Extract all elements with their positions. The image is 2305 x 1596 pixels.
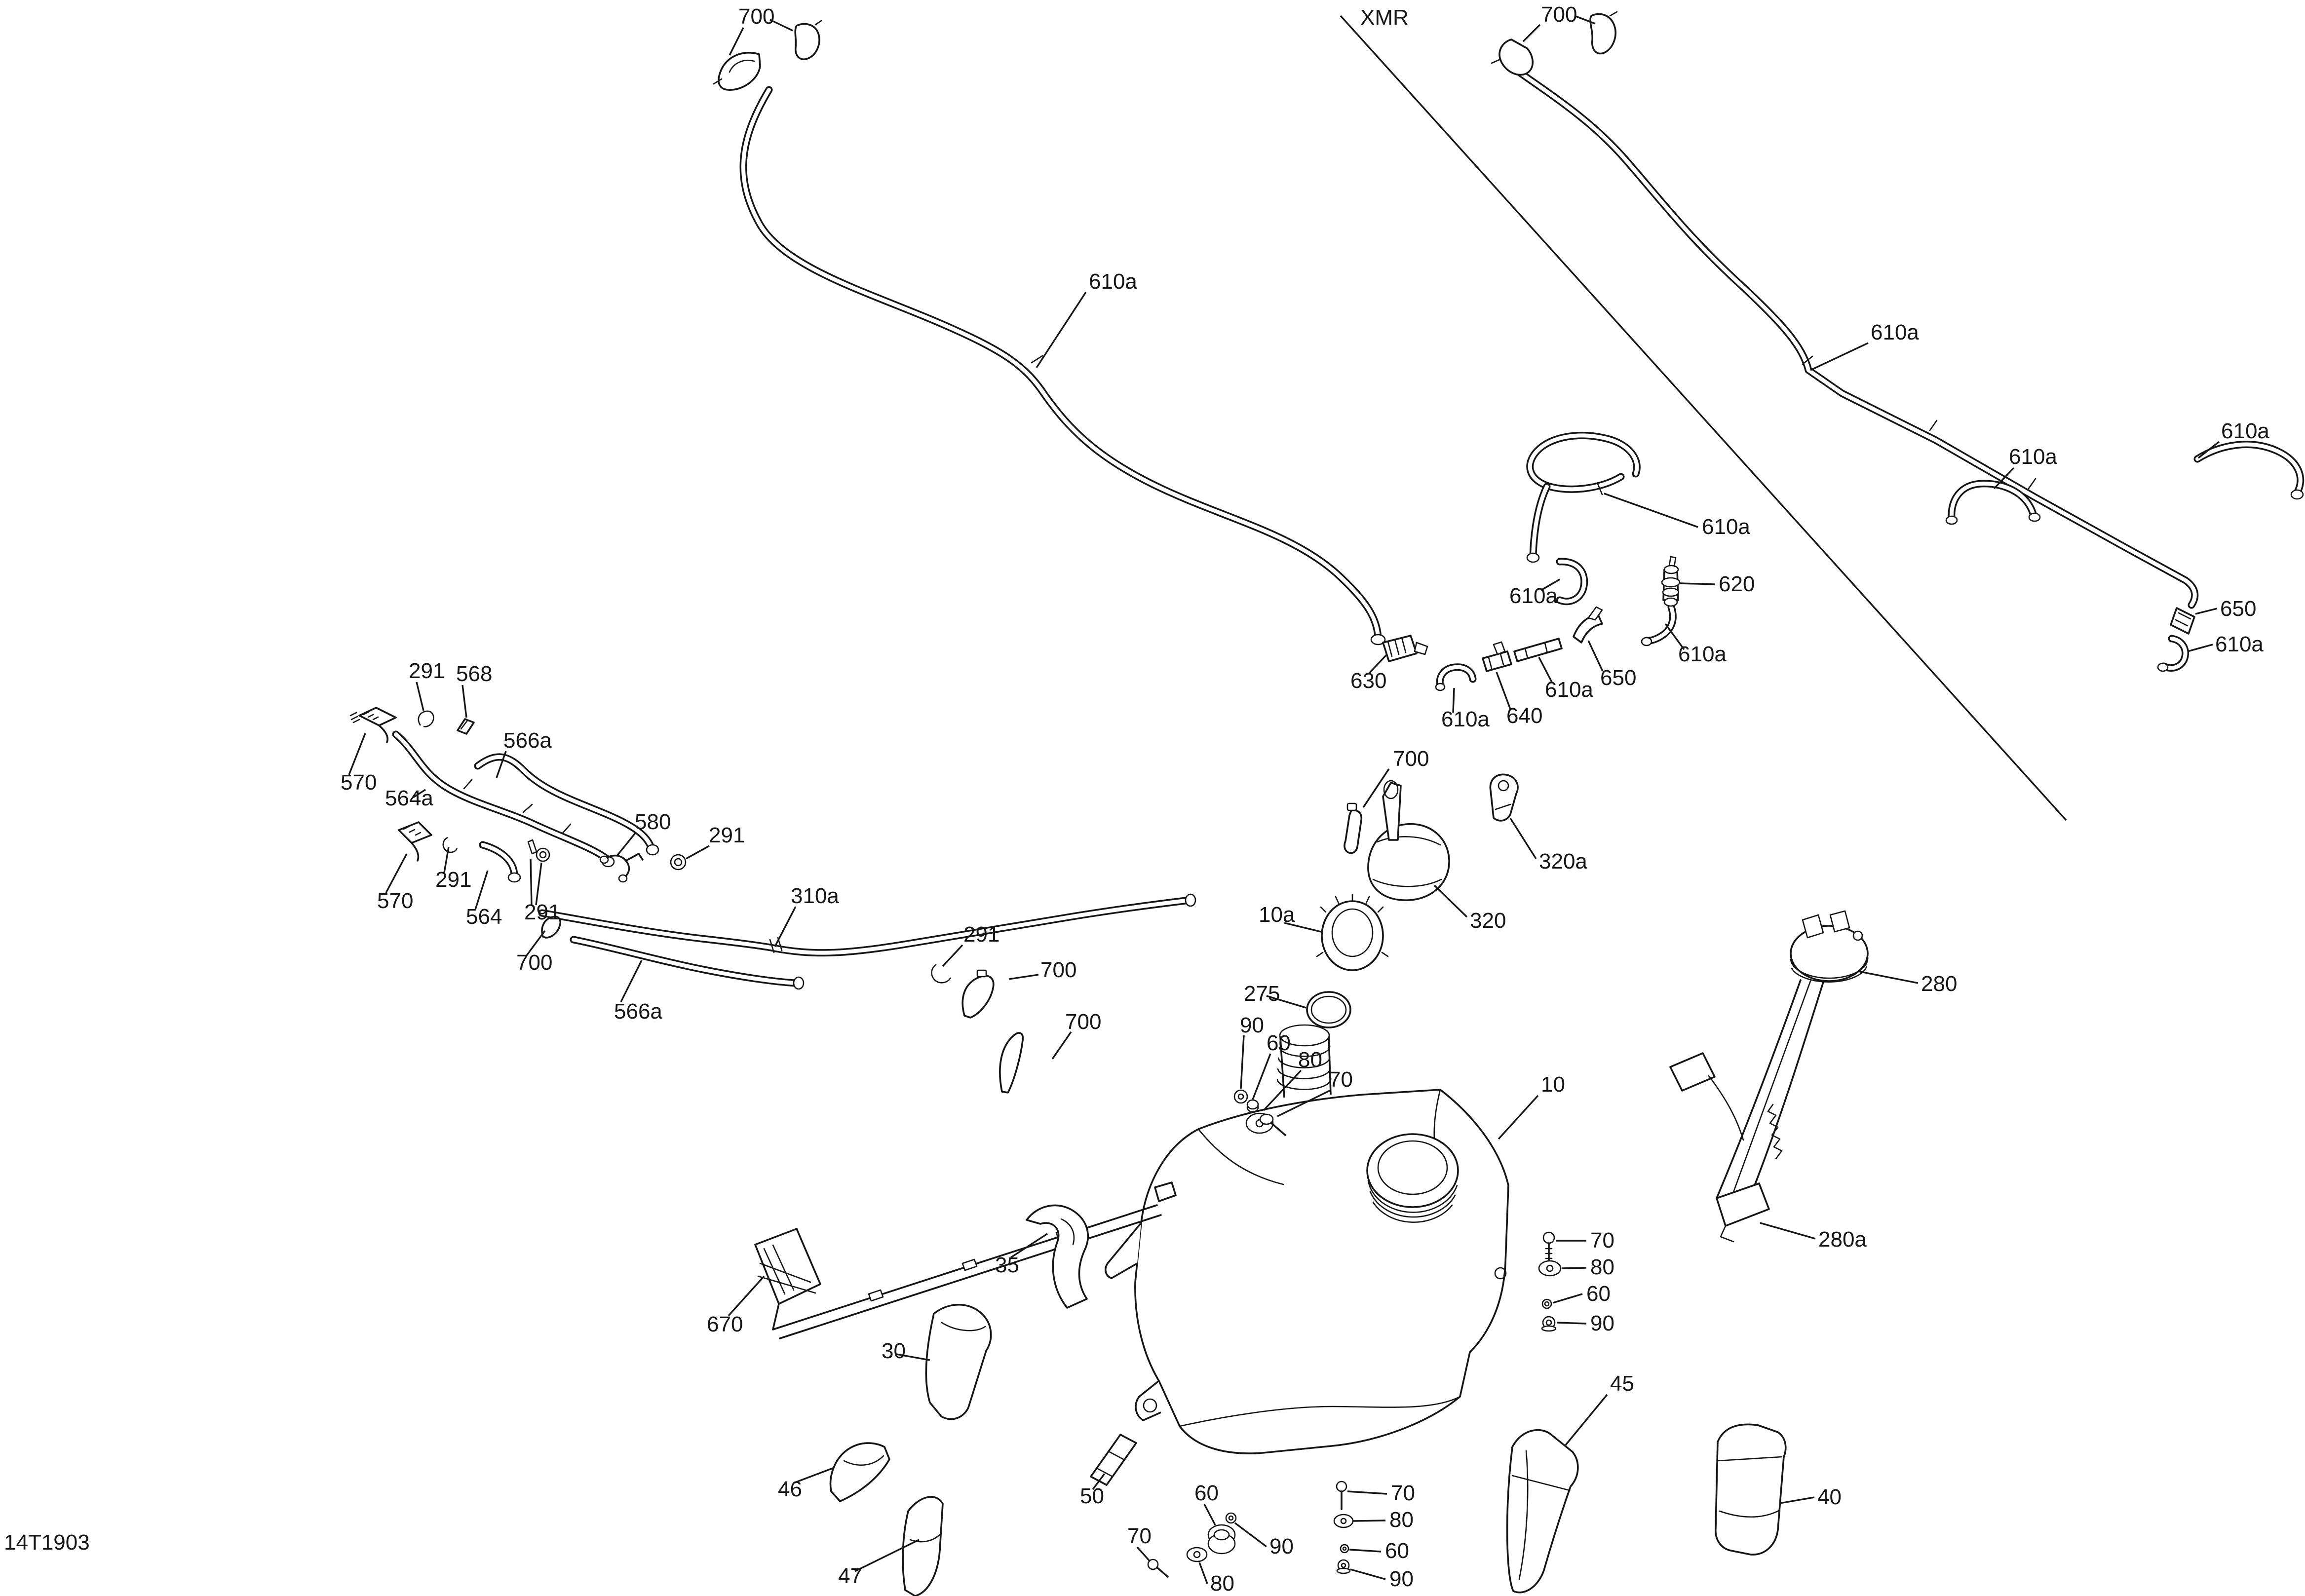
diagram-linework — [815, 21, 821, 25]
washer-80-bottom-right — [1334, 1515, 1353, 1527]
nut-60-right — [1542, 1299, 1551, 1308]
part-label-610a-7: 610a — [2215, 632, 2264, 656]
diagram-linework — [1027, 1205, 1088, 1308]
diagram-linework — [399, 822, 431, 843]
leader-line — [1566, 1395, 1607, 1445]
leader-line — [1347, 1491, 1387, 1494]
diagram-linework — [2158, 663, 2168, 671]
diagram-linework — [1341, 1519, 1346, 1523]
panel-46 — [830, 1443, 889, 1501]
panel-45 — [1507, 1430, 1578, 1593]
part-label-568-50: 568 — [456, 662, 492, 686]
part-label-650-6: 650 — [2220, 597, 2256, 621]
diagram-linework — [1311, 996, 1346, 1023]
part-label-90-32: 90 — [1590, 1311, 1614, 1335]
part-label-280-27: 280 — [1921, 972, 1957, 996]
diagram-linework — [1415, 643, 1427, 654]
leader-line — [1680, 583, 1715, 584]
diagram-linework — [1000, 1033, 1023, 1093]
leader-line — [1235, 1523, 1267, 1547]
diagram-linework — [464, 356, 2036, 952]
leader-line — [1510, 818, 1536, 859]
part-label-280a-28: 280a — [1818, 1227, 1867, 1252]
diagram-linework — [458, 719, 474, 734]
diagram-linework — [1378, 1141, 1447, 1194]
part-label-650-16: 650 — [1600, 666, 1636, 690]
grommet-60-bottom — [1208, 1525, 1235, 1554]
part-label-310a-61: 310a — [791, 884, 839, 908]
part-label-570-57: 570 — [377, 889, 413, 913]
diagram-linework — [962, 976, 994, 1018]
part-label-320a-18: 320a — [1539, 849, 1587, 874]
leader-line — [2195, 608, 2217, 614]
part-label-60-31: 60 — [1586, 1282, 1611, 1306]
diagram-linework — [932, 964, 951, 983]
part-label-700-1: 700 — [1541, 2, 1577, 27]
part-label-610a-10: 610a — [1509, 584, 1558, 608]
diagram-linework — [1499, 39, 1533, 75]
washer-80-bottom-left — [1187, 1548, 1207, 1561]
bolt-70-right — [1543, 1232, 1554, 1262]
parts-diagram-page: 14T1903 — [0, 0, 2305, 1596]
diagram-linework — [1768, 1104, 1782, 1159]
diagram-linework — [1136, 1381, 1161, 1420]
diagram-linework — [1670, 1053, 1715, 1091]
diagram-linework — [1186, 894, 1195, 906]
part-label-291-59: 291 — [524, 900, 560, 924]
vent-hose-left-610a — [743, 90, 1378, 638]
elbow-610a-right — [2164, 639, 2186, 668]
part-label-640-14: 640 — [1506, 704, 1542, 728]
diagram-linework — [719, 53, 760, 90]
fuel-pump-280 — [1670, 911, 1868, 1242]
diagram-linework — [903, 1497, 943, 1596]
part-label-70-45: 70 — [1391, 1481, 1415, 1505]
leader-line — [1009, 975, 1038, 979]
diagram-linework — [2171, 608, 2194, 634]
leader-line — [531, 859, 532, 905]
diagram-linework — [1494, 642, 1505, 654]
diagram-linework — [794, 977, 804, 989]
diagram-linework — [1194, 1552, 1200, 1558]
diagram-linework — [1091, 1435, 1136, 1485]
leader-line — [1353, 1520, 1385, 1521]
retainer-clip-700-top-right-a — [1492, 39, 1533, 75]
part-label-564a-53: 564a — [385, 786, 433, 810]
part-label-46-38: 46 — [778, 1477, 802, 1501]
part-label-610a-3: 610a — [1871, 320, 1919, 344]
leader-line — [2188, 645, 2213, 651]
drawing-code-label: 14T1903 — [4, 1530, 90, 1555]
diagram-linework — [1545, 1302, 1549, 1306]
diagram-linework — [1337, 1482, 1346, 1491]
leader-line — [1241, 1035, 1244, 1089]
part-label-566a-62: 566a — [614, 999, 662, 1024]
leader-line — [1350, 1569, 1385, 1579]
leader-line — [729, 1276, 764, 1316]
retainer-clip-700-top-left-b — [795, 21, 821, 59]
diagram-linework — [1343, 1547, 1346, 1550]
cap-bracket-320a — [1490, 774, 1518, 821]
diagram-linework — [1642, 638, 1652, 646]
diagram-linework — [350, 713, 359, 722]
clamp-291-c — [443, 837, 457, 852]
diagram-linework — [1516, 70, 2195, 605]
elbow-610a-mid — [1560, 562, 1584, 602]
hose-cuffs — [508, 490, 2303, 989]
diagram-linework — [540, 852, 546, 858]
part-label-620-9: 620 — [1719, 572, 1755, 596]
exploded-parts-diagram: 14T1903 — [0, 0, 2305, 1596]
diagram-linework — [1547, 1265, 1553, 1271]
diagram-linework — [508, 873, 520, 882]
diagram-linework — [1574, 615, 1602, 643]
diagram-linework — [647, 845, 658, 855]
leader-line — [1553, 1294, 1582, 1303]
part-label-610a-2: 610a — [1089, 269, 1137, 294]
vent-hose-s-610a — [1530, 435, 1637, 556]
leader-line — [1199, 1562, 1207, 1584]
part-label-610a-11: 610a — [1678, 642, 1727, 666]
part-label-670-35: 670 — [707, 1312, 743, 1336]
diagram-linework — [2291, 490, 2303, 499]
diagram-linework — [1383, 636, 1417, 661]
part-label-30-37: 30 — [882, 1339, 906, 1363]
panel-47 — [903, 1497, 943, 1596]
vent-hose-end-right-610a — [2197, 445, 2301, 493]
leader-line — [386, 854, 407, 893]
leader-line — [1760, 1223, 1815, 1239]
diagram-linework — [1663, 588, 1679, 596]
leader-line — [1498, 1096, 1538, 1139]
diagram-linework — [1342, 1563, 1345, 1567]
diagram-linework — [1664, 566, 1678, 573]
variant-divider-line — [1341, 16, 2066, 820]
part-label-564-58: 564 — [466, 905, 502, 929]
diagram-linework — [926, 1305, 991, 1419]
diagram-linework — [1662, 578, 1680, 587]
y-fitting-580 — [600, 854, 643, 882]
diagram-linework — [1238, 1094, 1243, 1099]
fuel-cap-320 — [1368, 781, 1449, 900]
diagram-linework — [1507, 1430, 1578, 1593]
ring-291-b — [671, 855, 686, 870]
part-label-10-26: 10 — [1541, 1072, 1565, 1097]
part-label-275-21: 275 — [1244, 982, 1280, 1006]
leader-line — [1604, 494, 1698, 527]
flange-nut-90-bottom-right — [1337, 1560, 1350, 1573]
part-label-80-24: 80 — [1298, 1048, 1322, 1072]
diagram-linework — [600, 856, 608, 863]
leader-line — [1562, 1268, 1586, 1268]
diagram-linework — [1543, 1232, 1554, 1243]
part-label-90-22: 90 — [1240, 1013, 1264, 1037]
diagram-linework — [619, 875, 627, 882]
part-label-47-39: 47 — [838, 1564, 862, 1588]
part-label-700-64: 700 — [1040, 958, 1076, 982]
part-label-610a-8: 610a — [1702, 515, 1750, 539]
leader-line — [1523, 25, 1540, 41]
leader-line — [621, 960, 642, 1002]
part-label-60-41: 60 — [1194, 1481, 1219, 1505]
retainer-clip-700-top-left-a — [714, 53, 760, 90]
diagram-linework — [1347, 803, 1356, 810]
part-label-80-43: 80 — [1210, 1571, 1234, 1596]
leader-line — [1810, 343, 1868, 370]
part-label-700-65: 700 — [1065, 1010, 1101, 1034]
nut-90-bottom-left — [1226, 1513, 1236, 1523]
leader-line — [536, 863, 541, 905]
variant-label: XMR — [1360, 5, 1409, 30]
diagram-linework — [1560, 562, 1584, 602]
diagram-linework — [1610, 12, 1617, 16]
part-label-60-23: 60 — [1267, 1031, 1291, 1055]
diagram-linework — [1542, 1326, 1556, 1331]
diagram-linework — [1716, 1424, 1786, 1555]
leader-line — [1780, 1497, 1814, 1503]
nut-60-bottom-right — [1341, 1545, 1348, 1553]
part-label-50-40: 50 — [1080, 1484, 1104, 1508]
part-label-90-44: 90 — [1269, 1534, 1294, 1558]
diagram-linework — [1721, 1226, 1733, 1242]
leader-line — [1434, 885, 1467, 917]
leader-line — [1204, 1504, 1215, 1525]
diagram-linework — [1546, 1320, 1551, 1325]
leader-line — [1349, 1550, 1381, 1552]
leader-line — [775, 907, 796, 947]
leader-line — [475, 871, 488, 910]
diagram-linework — [1214, 1530, 1229, 1540]
part-label-70-25: 70 — [1329, 1067, 1353, 1092]
fuel-tank-10 — [1106, 1025, 1508, 1453]
part-label-80-30: 80 — [1590, 1255, 1614, 1279]
part-label-570-51: 570 — [341, 770, 377, 795]
leader-line — [349, 733, 365, 775]
cap-strap-700 — [1345, 803, 1361, 853]
diagram-linework — [443, 837, 457, 852]
retainer-clip-700-top-right-b — [1590, 12, 1617, 54]
seal-oring-275 — [1307, 992, 1350, 1027]
part-label-80-46: 80 — [1389, 1508, 1414, 1532]
diagram-linework — [412, 843, 419, 861]
spacer-60-mid — [1247, 1100, 1258, 1112]
diagram-linework — [1337, 1568, 1350, 1573]
fitting-630 — [1383, 636, 1427, 661]
diagram-linework — [2029, 513, 2040, 521]
part-label-45-33: 45 — [1610, 1371, 1634, 1396]
part-label-700-60: 700 — [516, 950, 552, 975]
diagram-linework — [1157, 1567, 1168, 1577]
part-label-610a-15: 610a — [1545, 678, 1593, 702]
fitting-650-mid — [1574, 607, 1602, 643]
part-label-566a-52: 566a — [503, 728, 552, 753]
part-label-291-49: 291 — [409, 659, 445, 683]
diagram-linework — [1530, 435, 1637, 489]
clip-568 — [458, 719, 474, 734]
lock-ring-10a — [1317, 894, 1388, 970]
diagram-linework — [755, 1229, 820, 1304]
pipe-610a-segment — [1514, 639, 1562, 661]
diagram-linework — [542, 900, 1190, 953]
vent-hose-right-610a — [1516, 70, 2195, 605]
connector-570-upper — [350, 708, 396, 742]
duct-35 — [1027, 1205, 1088, 1308]
diagram-linework — [419, 711, 433, 726]
leader-line — [417, 682, 423, 711]
part-label-700-17: 700 — [1393, 747, 1429, 771]
part-label-291-56: 291 — [435, 868, 471, 892]
check-valve-620 — [1662, 557, 1680, 606]
part-label-580-54: 580 — [635, 810, 671, 834]
diagram-linework — [1345, 810, 1361, 853]
clamp-700-mid — [962, 970, 994, 1018]
diagram-linework — [379, 725, 387, 742]
flange-nut-90-right — [1542, 1317, 1556, 1331]
hose-620-drop — [1647, 607, 1673, 641]
part-label-10a-20: 10a — [1259, 903, 1295, 927]
diagram-linework — [1247, 1100, 1258, 1109]
diagram-linework — [1717, 1183, 1769, 1226]
connector-570-lower — [399, 822, 431, 861]
leader-line — [1858, 971, 1918, 983]
strip-50 — [1091, 1435, 1136, 1485]
part-label-610a-4: 610a — [2009, 445, 2057, 469]
diagram-linework — [1946, 516, 1957, 524]
leader-line — [1052, 1032, 1071, 1059]
diagram-linework — [869, 1229, 1071, 1301]
part-label-40-34: 40 — [1817, 1485, 1842, 1509]
bolt-70-bottom-right — [1337, 1482, 1346, 1509]
nut-90-mid — [1234, 1090, 1247, 1103]
part-label-70-29: 70 — [1590, 1228, 1614, 1253]
part-label-610a-13: 610a — [1441, 707, 1490, 731]
diagram-linework — [743, 90, 1378, 638]
clamp-291-right — [932, 964, 951, 983]
leader-line — [617, 833, 636, 856]
clamp-700-lower — [1000, 1033, 1023, 1093]
diagram-linework — [1332, 909, 1373, 956]
diagram-linework — [977, 970, 986, 977]
diagram-linework — [675, 859, 682, 866]
part-label-70-42: 70 — [1127, 1524, 1152, 1548]
clamp-291-a — [419, 711, 433, 726]
part-label-630-12: 630 — [1350, 669, 1386, 693]
diagram-linework — [626, 854, 643, 861]
tee-fitting-640 — [1483, 642, 1511, 671]
diagram-linework — [1717, 980, 1801, 1198]
hose-segment-ticks — [464, 356, 2036, 952]
leader-line — [943, 945, 962, 966]
leader-line — [1557, 1323, 1586, 1324]
panel-40 — [1716, 1424, 1786, 1555]
leader-line — [462, 685, 466, 718]
part-number-labels: 700700610a610a610a610a650610a610a620610a… — [4, 2, 2269, 1596]
diagram-linework — [1853, 931, 1862, 940]
diagram-linework — [528, 840, 537, 854]
leader-line — [1037, 292, 1086, 368]
diagram-linework — [743, 90, 1378, 638]
leader-line — [1137, 1547, 1150, 1561]
part-label-60-47: 60 — [1385, 1539, 1409, 1563]
part-label-291-55: 291 — [709, 823, 745, 847]
leader-line — [730, 28, 743, 55]
part-label-320-19: 320 — [1470, 909, 1506, 933]
diagram-linework — [1135, 1090, 1508, 1453]
diagram-linework — [1492, 59, 1500, 63]
diagram-linework — [1514, 639, 1562, 661]
bolt-70-bottom-left — [1148, 1559, 1168, 1577]
fuel-line-310a — [542, 900, 1190, 953]
diagram-linework — [1229, 1516, 1233, 1520]
washer-80-right — [1539, 1261, 1561, 1276]
diagram-linework — [1527, 553, 1539, 562]
diagram-linework — [1436, 684, 1445, 690]
diagram-linework — [1664, 598, 1677, 606]
part-label-35-36: 35 — [995, 1253, 1019, 1277]
pin-and-ring-291-d — [528, 840, 549, 861]
diagram-linework — [359, 708, 396, 725]
diagram-linework — [1590, 14, 1615, 54]
diagram-linework — [830, 1443, 889, 1501]
leader-line — [1253, 1054, 1270, 1100]
diagram-linework — [1730, 981, 1810, 1200]
diagram-linework — [1709, 1076, 1743, 1140]
elbow-fitting-610a-low — [1436, 667, 1473, 690]
part-label-700-0: 700 — [738, 4, 774, 29]
part-label-610a-5: 610a — [2221, 419, 2269, 443]
fitting-650-right — [2171, 608, 2194, 634]
part-label-90-48: 90 — [1389, 1567, 1414, 1591]
leader-line — [686, 846, 709, 859]
diagram-linework — [795, 24, 819, 60]
part-label-291-63: 291 — [963, 922, 999, 947]
panel-30 — [926, 1305, 991, 1419]
diagram-linework — [773, 1304, 779, 1330]
